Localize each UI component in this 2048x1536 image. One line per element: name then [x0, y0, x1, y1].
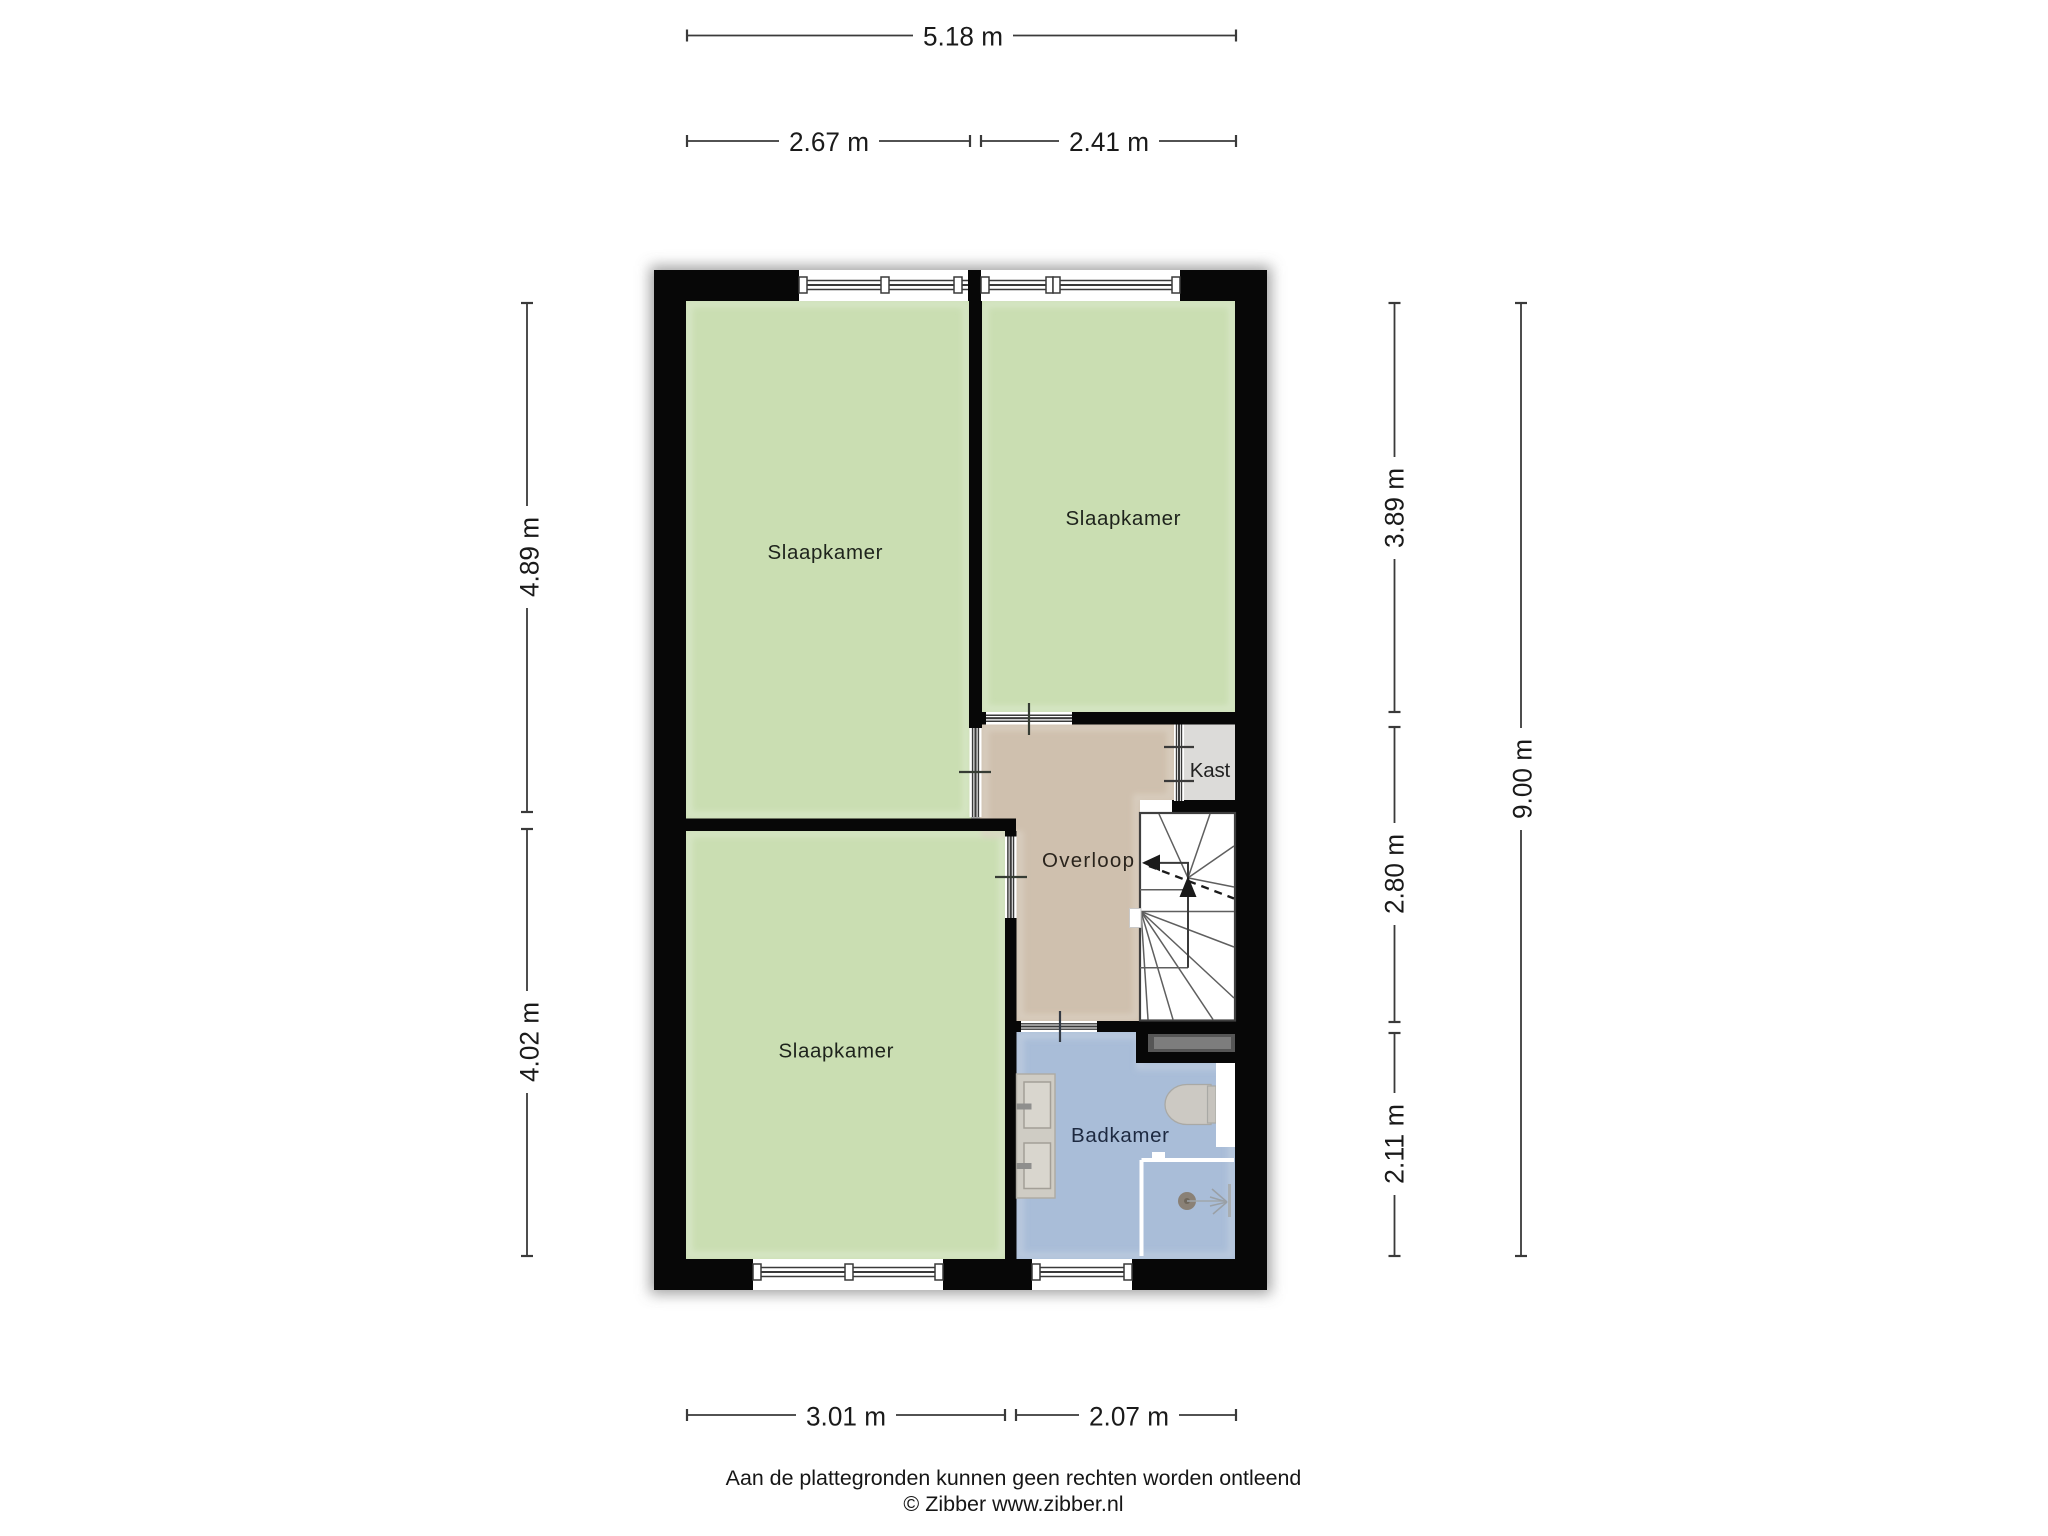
svg-text:2.07 m: 2.07 m — [1089, 1402, 1169, 1432]
svg-text:3.89 m: 3.89 m — [1380, 468, 1410, 548]
svg-text:4.02 m: 4.02 m — [515, 1002, 545, 1082]
svg-text:Aan de plattegronden kunnen ge: Aan de plattegronden kunnen geen rechten… — [726, 1466, 1302, 1490]
svg-text:2.67 m: 2.67 m — [789, 127, 869, 157]
svg-text:2.41 m: 2.41 m — [1069, 127, 1149, 157]
svg-text:9.00 m: 9.00 m — [1508, 739, 1538, 819]
svg-text:Overloop: Overloop — [1042, 849, 1134, 872]
svg-text:Slaapkamer: Slaapkamer — [779, 1040, 894, 1063]
svg-text:Slaapkamer: Slaapkamer — [768, 541, 883, 564]
svg-text:2.80 m: 2.80 m — [1380, 834, 1410, 914]
svg-text:Badkamer: Badkamer — [1071, 1124, 1169, 1147]
svg-text:© Zibber www.zibber.nl: © Zibber www.zibber.nl — [903, 1492, 1123, 1516]
svg-text:2.11 m: 2.11 m — [1380, 1104, 1410, 1184]
svg-text:5.18 m: 5.18 m — [923, 22, 1003, 52]
svg-text:Kast: Kast — [1190, 759, 1231, 782]
svg-text:Slaapkamer: Slaapkamer — [1066, 507, 1181, 530]
svg-text:4.89 m: 4.89 m — [515, 517, 545, 597]
svg-text:3.01 m: 3.01 m — [806, 1402, 886, 1432]
